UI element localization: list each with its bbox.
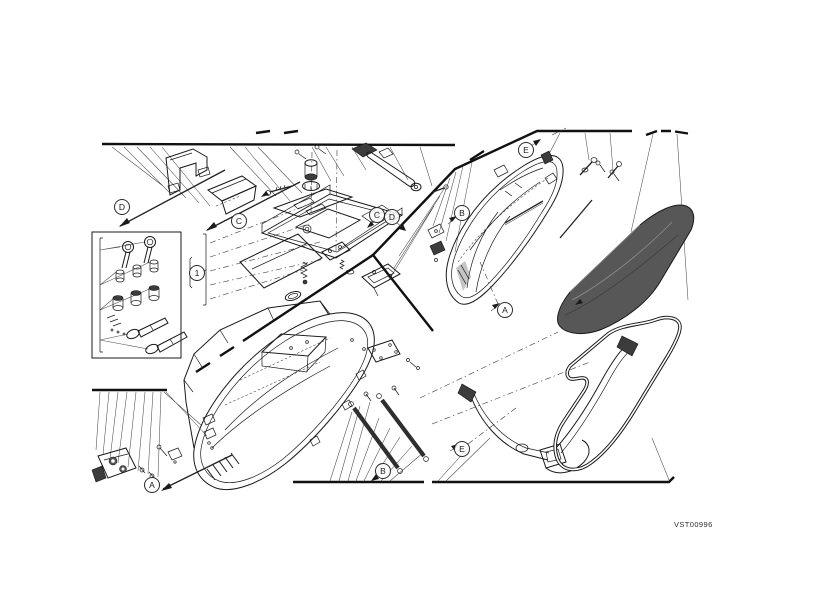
callout-B: B — [375, 463, 391, 479]
callout-D: D — [114, 199, 130, 215]
callout-E: E — [454, 441, 470, 457]
callout-B: B — [454, 205, 470, 221]
callout-A: A — [144, 477, 160, 493]
diagram-code: VST00996 — [674, 520, 713, 529]
callout-layer: DCCDEBAABE1 — [0, 0, 835, 605]
callout-1: 1 — [189, 265, 205, 281]
callout-D: D — [384, 209, 400, 225]
callout-E: E — [518, 142, 534, 158]
parts-diagram: DCCDEBAABE1 VST00996 — [0, 0, 835, 605]
callout-A: A — [497, 302, 513, 318]
callout-C: C — [369, 207, 385, 223]
callout-C: C — [231, 213, 247, 229]
